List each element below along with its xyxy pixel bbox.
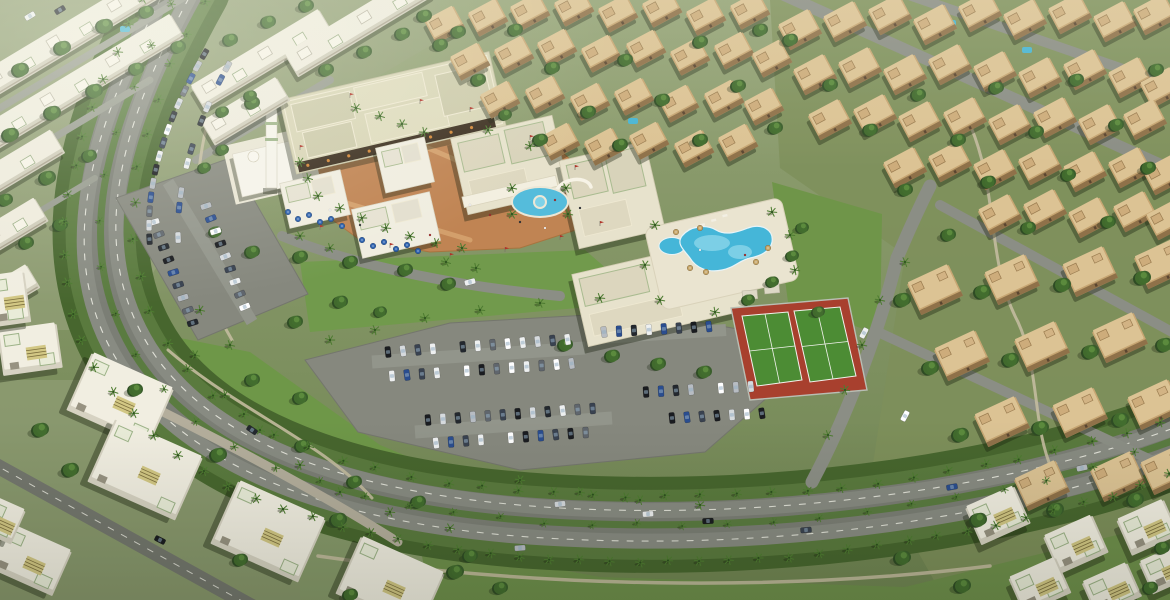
screenshot-viewport [0, 0, 1170, 600]
layer-fx [0, 0, 1170, 600]
aerial-community-render [0, 0, 1170, 600]
